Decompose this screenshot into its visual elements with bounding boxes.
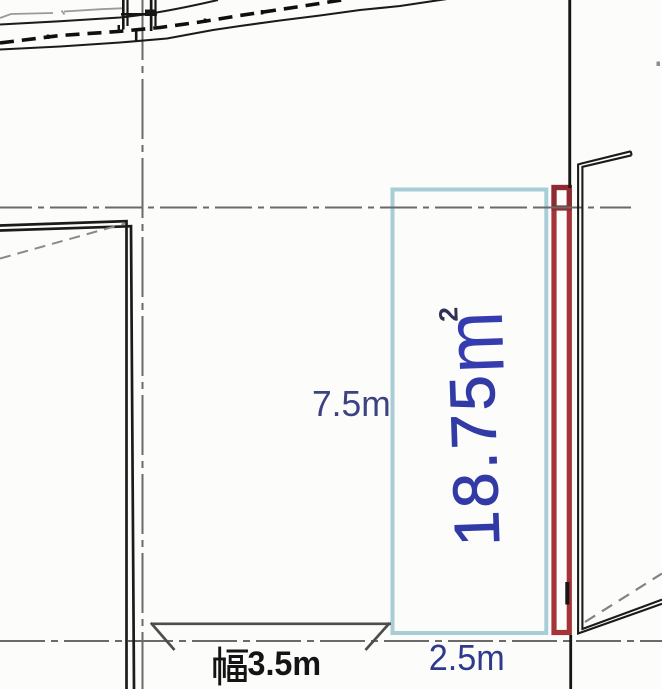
svg-text:7.5m: 7.5m (312, 382, 391, 424)
svg-text:3.5m: 3.5m (248, 645, 322, 683)
svg-text:18.75: 18.75 (438, 371, 514, 547)
svg-text:2: 2 (433, 307, 463, 323)
svg-text:2.5m: 2.5m (429, 638, 505, 678)
